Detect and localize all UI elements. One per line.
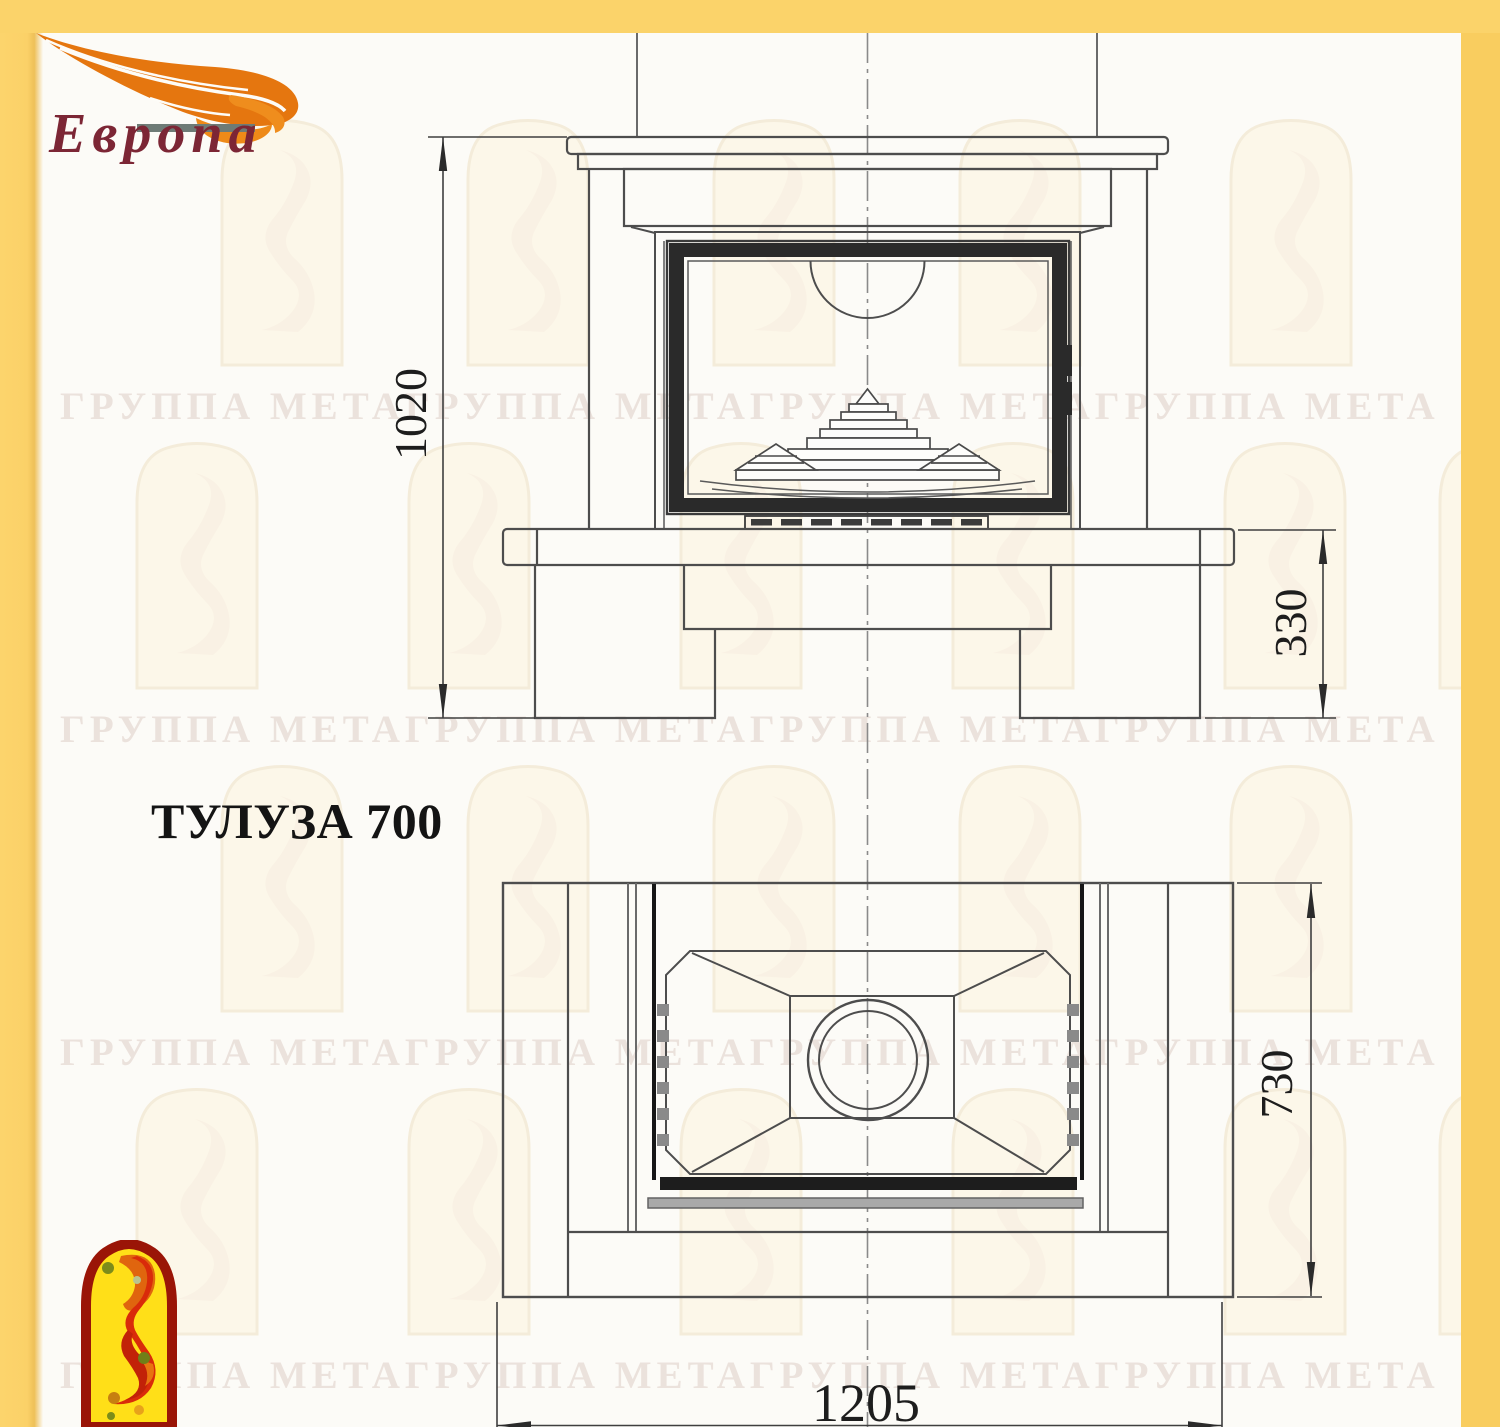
- svg-text:730: 730: [1251, 1050, 1302, 1119]
- svg-text:Европа: Европа: [48, 103, 263, 165]
- svg-text:330: 330: [1265, 589, 1316, 658]
- svg-text:1020: 1020: [385, 368, 436, 460]
- svg-text:1205: 1205: [812, 1373, 920, 1427]
